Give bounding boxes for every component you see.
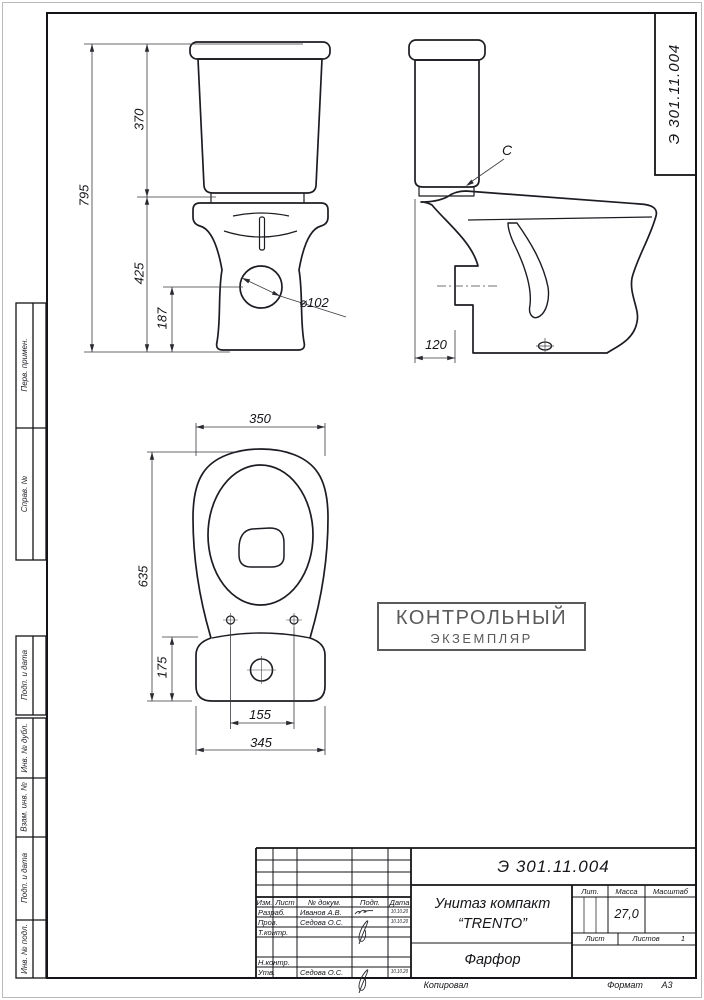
header-list2: Лист — [572, 935, 618, 943]
header-podp: Подп. — [352, 899, 388, 907]
dim-front-outlet-height: 187 — [156, 299, 169, 339]
titleblock-product-name: Унитаз компакт “TRENTO” — [413, 895, 572, 934]
margin-label-inv-dubl: Инв. № дубл. — [19, 719, 31, 777]
footer-format-label: Формат — [600, 981, 650, 990]
drawing-sheet: 795 370 425 187 ⌀102 C 120 350 635 175 1… — [0, 0, 704, 1000]
margin-label-sprav-no: Справ. № — [19, 431, 31, 557]
top-outline — [193, 449, 328, 701]
margin-label-podp-data-2: Подп. и дата — [19, 839, 31, 917]
stamp-line2: ЭКЗЕМПЛЯР — [430, 631, 533, 646]
dim-top-tank-width: 345 — [241, 736, 281, 749]
control-copy-stamp: КОНТРОЛЬНЫЙ ЭКЗЕМПЛЯР — [377, 602, 586, 651]
side-view — [409, 40, 656, 354]
name-razrab: Иванов А.В. — [300, 909, 342, 917]
name-utv: Седова О.С. — [300, 969, 343, 977]
header-list: Лист — [273, 899, 297, 907]
side-tank-body — [415, 60, 479, 187]
signatures — [355, 910, 372, 993]
product-name-line2: “TRENTO” — [413, 915, 572, 935]
side-tank-lid — [409, 40, 485, 60]
stamp-line1: КОНТРОЛЬНЫЙ — [396, 607, 567, 630]
row-razrab: Разраб. — [258, 909, 285, 917]
front-tank-lid — [190, 42, 330, 59]
front-tank-body — [198, 59, 322, 193]
margin-label-vzam-inv: Взам. инв. № — [19, 779, 31, 836]
header-lit: Лит. — [572, 888, 608, 896]
side-bowl-silhouette — [421, 191, 656, 353]
top-view — [193, 449, 328, 701]
header-masshtab: Масштаб — [645, 888, 696, 896]
footer-kopiroval: Копировал — [400, 981, 492, 990]
dim-front-outlet-diameter: ⌀102 — [292, 296, 336, 309]
signature-utv — [359, 970, 368, 993]
top-seat-ring — [208, 465, 313, 605]
side-detail-label: C — [498, 143, 516, 157]
side-bowl-recess — [508, 223, 549, 318]
dim-front-total-height: 795 — [78, 176, 91, 216]
front-bowl-silhouette — [193, 203, 328, 350]
row-utv: Утв. — [258, 969, 275, 977]
margin-label-inv-podl: Инв. № подл. — [19, 921, 31, 977]
date-razrab: 10.10.20 — [390, 910, 408, 916]
sheets-total-value: 1 — [674, 935, 692, 943]
header-massa: Масса — [608, 888, 645, 896]
signature-prov — [359, 921, 368, 944]
mass-value: 27,0 — [608, 908, 645, 921]
titleblock-doc-number: Э 301.11.004 — [411, 858, 696, 875]
titleblock-material: Фарфор — [413, 953, 572, 968]
row-tkontr: Т.контр. — [258, 929, 288, 937]
top-water-hole — [239, 528, 284, 567]
date-utv: 10.10.20 — [390, 970, 408, 976]
date-prov: 10.10.20 — [390, 920, 408, 926]
sheet-frame — [3, 3, 702, 998]
signature-razrab — [355, 910, 372, 914]
header-data: Дата — [388, 899, 411, 907]
drawing-geometry — [0, 0, 704, 1000]
row-nkontr: Н.контр. — [258, 959, 290, 967]
document-code-vertical: Э 301.11.004 — [667, 13, 683, 175]
header-doc: № докум. — [297, 899, 352, 907]
dim-side-depth: 120 — [416, 338, 456, 351]
product-name-line1: Унитаз компакт — [413, 895, 572, 915]
dim-top-bowl-width: 350 — [240, 412, 280, 425]
dim-top-bolt-spacing: 155 — [240, 708, 280, 721]
header-listov: Листов — [618, 935, 674, 943]
footer-format-value: А3 — [655, 981, 679, 990]
dim-top-tank-depth: 175 — [156, 648, 169, 688]
row-prov: Пров. — [258, 919, 278, 927]
margin-label-perv-primen: Перв. примен. — [19, 305, 31, 425]
dim-front-bowl-height: 425 — [133, 254, 146, 294]
header-izm: Изм. — [256, 899, 273, 907]
margin-label-podp-data-1: Подп. и дата — [19, 637, 31, 713]
dim-front-tank-height: 370 — [133, 100, 146, 140]
name-prov: Седова О.С. — [300, 919, 343, 927]
dim-top-total-length: 635 — [137, 557, 150, 597]
